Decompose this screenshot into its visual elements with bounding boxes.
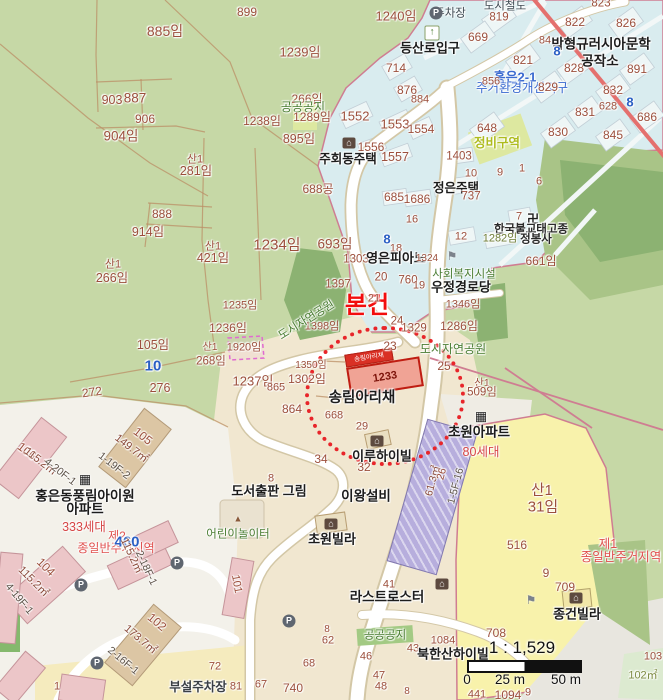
map-label: 초원아파트 bbox=[448, 425, 510, 439]
scale-tick-start: 0 bbox=[463, 672, 471, 687]
map-label: 845 bbox=[603, 129, 623, 141]
map-label: 899 bbox=[237, 6, 257, 18]
map-label: 516 bbox=[507, 539, 527, 551]
building-icon: ▦ bbox=[79, 473, 91, 486]
map-label: 1557 bbox=[381, 151, 409, 164]
map-label: 부설주차장 bbox=[169, 681, 227, 694]
map-label: 1403 bbox=[446, 151, 472, 163]
map-label: 박형규러시아문학 bbox=[551, 37, 650, 51]
map-label: 272 bbox=[81, 385, 103, 400]
map-label: 826 bbox=[616, 17, 636, 29]
map-label: 1 bbox=[54, 682, 60, 693]
map-label: 823 bbox=[591, 0, 610, 10]
map-label: 1239임 bbox=[280, 46, 321, 59]
map-label: 8 bbox=[404, 687, 410, 697]
map-label: 주회동주택 bbox=[319, 153, 377, 166]
map-label: 북한산하이빌 bbox=[417, 648, 489, 661]
map-label: 685 bbox=[384, 191, 404, 203]
map-label: 628 bbox=[599, 102, 617, 113]
map-label: 공작소 bbox=[581, 54, 618, 68]
map-label: 제1 bbox=[599, 538, 617, 551]
map-label: 1552 bbox=[341, 110, 370, 123]
map-label: 6 bbox=[536, 177, 542, 188]
map-label: 46 bbox=[360, 652, 372, 663]
map-label: 887 bbox=[124, 91, 147, 105]
map-label: 737 bbox=[461, 191, 480, 203]
trail-entrance-icon: ↑ bbox=[425, 26, 440, 41]
map-label: 821 bbox=[513, 54, 533, 66]
map-label: 1303 bbox=[343, 254, 369, 266]
map-canvas[interactable]: 1233 송림아리채 본건 885임899903887906904임1239임1… bbox=[0, 0, 663, 700]
map-label: 1235임 bbox=[223, 301, 258, 312]
map-label: 1553 bbox=[381, 118, 410, 131]
map-label: 34 bbox=[314, 453, 327, 465]
map-label: 441 bbox=[468, 690, 486, 700]
map-label: 1084 bbox=[431, 636, 455, 647]
map-label: 19 bbox=[413, 281, 425, 292]
map-label: 72 bbox=[209, 662, 221, 673]
map-label: 1240임 bbox=[376, 10, 417, 23]
map-label: 정봉사 bbox=[520, 234, 552, 246]
map-label: 1686 bbox=[404, 193, 431, 205]
map-label: 648 bbox=[477, 122, 497, 134]
map-label: 31임 bbox=[528, 500, 559, 515]
map-label: 884 bbox=[411, 95, 429, 106]
map-label: 885임 bbox=[147, 24, 183, 38]
map-label: 20 bbox=[375, 272, 388, 284]
map-label: 103 bbox=[644, 652, 662, 663]
map-label: 688공 bbox=[302, 183, 333, 195]
house-icon: ⌂ bbox=[436, 579, 449, 590]
map-label: 1289임 bbox=[293, 111, 331, 123]
map-label: 1324 bbox=[416, 254, 438, 264]
map-label: 10 bbox=[145, 359, 162, 374]
parking-icon: P bbox=[171, 557, 184, 570]
parking-icon: P bbox=[91, 657, 104, 670]
map-label: 공공공지 bbox=[364, 630, 406, 642]
map-label: 26 bbox=[435, 467, 448, 481]
map-label: 1282임 bbox=[483, 234, 518, 245]
map-label: 281임 bbox=[180, 165, 212, 178]
map-label: 906 bbox=[135, 113, 155, 125]
map-label: 1350임 bbox=[295, 361, 326, 371]
map-label: 268임 bbox=[196, 356, 226, 368]
map-label: 초원빌라 bbox=[308, 533, 356, 546]
map-label: 10 bbox=[465, 169, 477, 180]
map-label: 25 bbox=[437, 360, 450, 372]
map-label: 이왕설비 bbox=[341, 489, 391, 503]
map-label: 1234임 bbox=[253, 238, 300, 253]
map-label: 1397 bbox=[325, 279, 351, 291]
map-label: 종일반주거지역 bbox=[581, 551, 662, 564]
house-icon: ⌂ bbox=[343, 138, 356, 149]
map-label: 29 bbox=[356, 422, 368, 433]
map-label: 1 bbox=[519, 164, 525, 175]
house-icon: ⌂ bbox=[325, 519, 338, 530]
map-label: 8 bbox=[626, 96, 633, 109]
map-label: 9 bbox=[497, 168, 503, 179]
map-label: 산1 bbox=[105, 260, 121, 271]
building-icon: ▦ bbox=[475, 410, 487, 423]
map-label: 669 bbox=[468, 31, 488, 43]
map-label: 산1 bbox=[531, 484, 552, 499]
map-label: 903 bbox=[102, 94, 123, 107]
map-label: 819 bbox=[489, 12, 508, 24]
map-label: 67 bbox=[255, 680, 267, 691]
map-label: 48 bbox=[375, 682, 387, 693]
map-label: 661임 bbox=[525, 255, 556, 267]
scale-tick-mid: 25 m bbox=[495, 672, 525, 687]
map-label: 891 bbox=[627, 63, 647, 75]
map-label: 16 bbox=[406, 215, 418, 226]
playground-icon: ▲ bbox=[234, 515, 243, 524]
map-label: 80세대 bbox=[463, 446, 500, 459]
landmark-flag-icon: ⚑ bbox=[526, 594, 537, 606]
map-label: 산1 bbox=[203, 343, 218, 353]
map-label: 1236임 bbox=[209, 322, 247, 334]
map-label: 9 bbox=[543, 567, 550, 579]
map-label: 종건빌라 bbox=[553, 608, 601, 621]
map-label: 84 bbox=[539, 36, 551, 47]
map-label: 829 bbox=[538, 81, 558, 93]
map-label: 1238임 bbox=[243, 115, 281, 127]
map-label: 1329 bbox=[401, 323, 427, 335]
scale-tick-end: 50 m bbox=[551, 672, 581, 687]
map-label: 686 bbox=[637, 111, 657, 123]
parking-icon: P bbox=[430, 7, 443, 20]
map-label: 우정경로당 bbox=[431, 281, 491, 294]
map-label: 102㎡ bbox=[628, 671, 657, 682]
map-label: 아파트 bbox=[66, 502, 103, 516]
parking-icon: P bbox=[283, 615, 296, 628]
map-label: 830 bbox=[548, 126, 568, 138]
landmark-flag-icon: ⚑ bbox=[447, 250, 458, 262]
map-label: 1302임 bbox=[288, 373, 326, 385]
map-label: 105임 bbox=[137, 339, 169, 352]
house-icon: ⌂ bbox=[570, 593, 583, 604]
map-label: 1346임 bbox=[446, 300, 481, 311]
map-label: 어린이놀이터 bbox=[206, 529, 269, 541]
map-label: 822 bbox=[565, 16, 585, 28]
map-label: 이루하이빌 bbox=[352, 450, 412, 463]
map-label: 831 bbox=[575, 106, 595, 118]
map-label: 등산로입구 bbox=[400, 42, 460, 55]
map-label: 정비구역 bbox=[474, 137, 520, 150]
map-label: 도서출판 그림 bbox=[231, 485, 306, 498]
map-label: 68 bbox=[303, 659, 315, 670]
map-label: 714 bbox=[386, 62, 406, 74]
map-label: 709 bbox=[555, 581, 575, 593]
map-label: 도시자연공원 bbox=[420, 343, 486, 355]
map-label: 914임 bbox=[132, 226, 164, 239]
map-label: 740 bbox=[283, 682, 303, 694]
map-label: 421임 bbox=[197, 252, 229, 265]
map-label: 333세대 bbox=[62, 521, 106, 534]
map-label: 7 bbox=[516, 212, 522, 223]
map-label: 668 bbox=[325, 411, 343, 422]
map-label: 1554 bbox=[408, 123, 435, 135]
map-label: 1920임 bbox=[227, 343, 262, 354]
map-label: 509임 bbox=[467, 387, 497, 399]
map-label: 276 bbox=[150, 382, 171, 395]
scale-ratio-label: 1 : 1,529 bbox=[489, 638, 555, 658]
map-label: 888 bbox=[152, 208, 172, 220]
map-label: 1286임 bbox=[440, 320, 478, 332]
map-label: 895임 bbox=[283, 133, 315, 146]
map-label: 8 bbox=[324, 625, 330, 635]
map-label: 23 bbox=[383, 340, 396, 352]
map-label: 21 bbox=[368, 294, 380, 305]
map-label: 9 bbox=[525, 688, 531, 699]
map-label: 693임 bbox=[318, 237, 353, 251]
house-icon: ⌂ bbox=[371, 436, 384, 447]
map-label: 송림아리채 bbox=[329, 391, 396, 406]
map-label: 856 bbox=[482, 77, 500, 88]
map-label: 41 bbox=[383, 580, 395, 591]
map-label: 864 bbox=[282, 403, 302, 415]
map-label: 1094 bbox=[495, 689, 522, 700]
parking-icon: P bbox=[75, 579, 88, 592]
map-label: 266임 bbox=[96, 272, 128, 285]
map-label: 832 bbox=[603, 84, 623, 96]
map-label: 81 bbox=[230, 682, 242, 693]
map-label: 62 bbox=[322, 636, 334, 647]
map-label: 12 bbox=[455, 232, 467, 243]
map-label: 라스트로스터 bbox=[350, 590, 425, 604]
map-label: 101 bbox=[229, 574, 243, 594]
map-label: 865 bbox=[267, 383, 285, 394]
map-label: 8 bbox=[553, 45, 560, 58]
map-label: 904임 bbox=[104, 129, 139, 143]
